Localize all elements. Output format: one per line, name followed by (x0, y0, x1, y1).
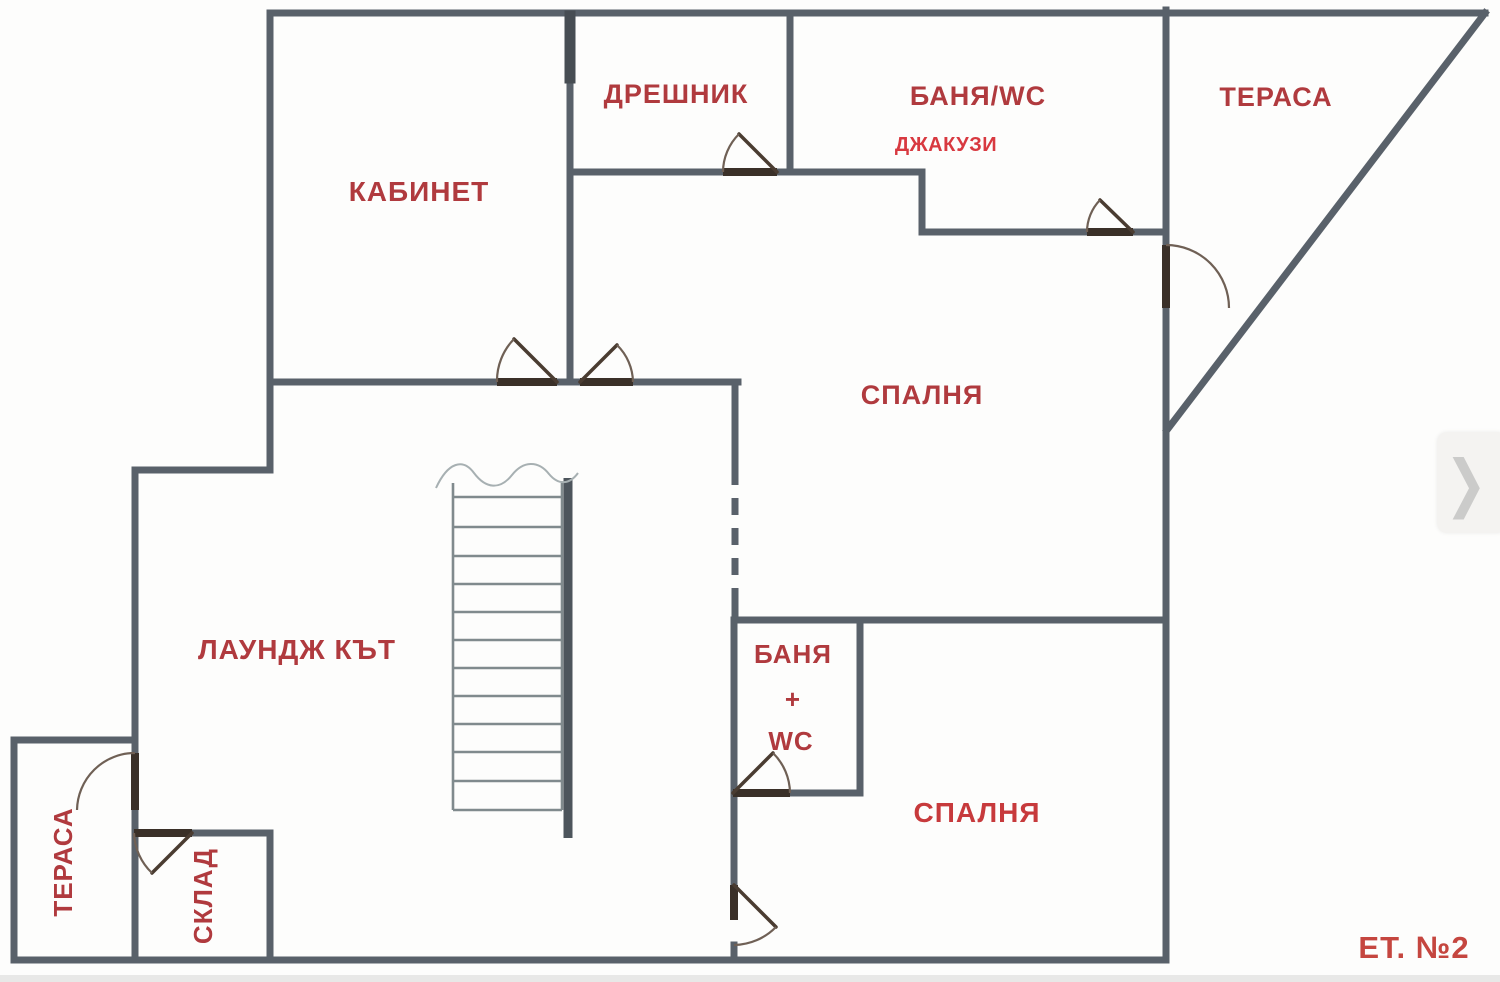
staircase (436, 464, 578, 838)
door-terrace-left (77, 753, 135, 810)
image-bottom-border (0, 975, 1500, 982)
room-label-terrace-left: ТЕРАСА (48, 807, 78, 916)
door-banya2 (733, 753, 790, 793)
carousel-next-button[interactable]: ❯ (1437, 432, 1500, 533)
door-sklad (134, 833, 192, 873)
room-label-banya2-line1: БАНЯ (754, 639, 832, 669)
room-label-banya2-line2: + (785, 684, 801, 714)
room-label-lounge: ЛАУНДЖ КЪТ (198, 634, 396, 665)
room-label-storage: СКЛАД (188, 848, 218, 944)
room-label-jacuzzi: ДЖАКУЗИ (895, 134, 997, 156)
floor-plan-drawing: КАБИНЕТ ДРЕШНИК БАНЯ/WC ДЖАКУЗИ ТЕРАСА С… (0, 0, 1500, 982)
room-label-banya-wc: БАНЯ/WC (910, 81, 1046, 111)
room-label-bedroom-upper: СПАЛНЯ (861, 380, 984, 410)
wall-diagonal-terrace (1167, 13, 1485, 430)
door-banya-wc (1087, 200, 1133, 232)
door-bedroom-lower (734, 885, 776, 945)
door-dreshnik (723, 134, 777, 172)
door-kabinet (497, 339, 557, 382)
room-label-banya2-line3: WC (768, 726, 813, 756)
floor-number-label: ЕТ. №2 (1358, 930, 1469, 965)
room-label-kabinet: КАБИНЕТ (349, 176, 490, 207)
stair-break-line (436, 464, 578, 488)
exterior-walls (14, 10, 1485, 960)
room-label-terrace-top: ТЕРАСА (1219, 82, 1332, 112)
doors (77, 134, 1229, 945)
floor-plan-page: КАБИНЕТ ДРЕШНИК БАНЯ/WC ДЖАКУЗИ ТЕРАСА С… (0, 0, 1500, 982)
door-terrace-top (1166, 245, 1229, 308)
chevron-right-icon: ❯ (1445, 451, 1487, 514)
door-hall-passage (580, 345, 633, 382)
room-label-bedroom-lower: СПАЛНЯ (914, 797, 1041, 828)
room-label-dreshnik: ДРЕШНИК (604, 79, 749, 109)
